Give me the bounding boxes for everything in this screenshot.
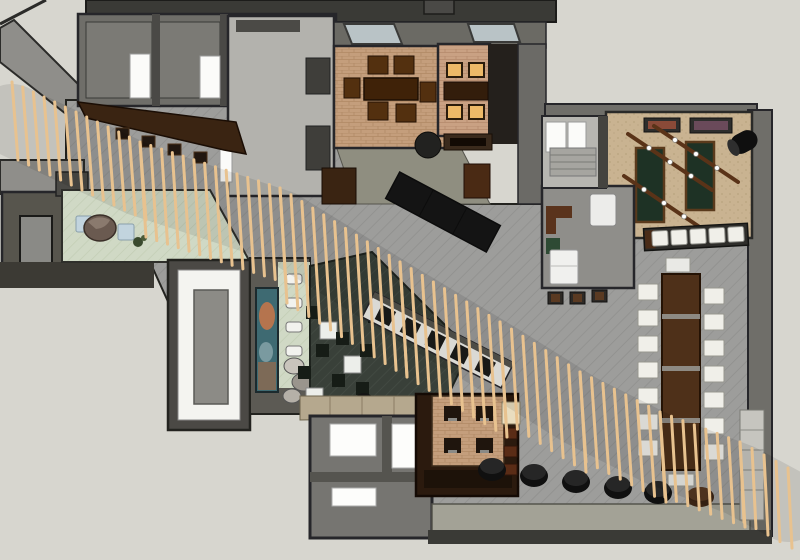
round-column [415,132,441,158]
lounge-table [320,322,337,339]
host-station [322,168,356,204]
bottom-walkway [432,504,750,532]
dining-chair [394,56,414,74]
communal-chair [704,288,724,304]
dining-chair [368,56,388,74]
bench-cushion [709,227,726,243]
wood-chair [504,446,517,457]
communal-chair [704,314,724,330]
wall-sconce [286,346,302,356]
door-opening [330,424,376,456]
shadow-wall [488,44,518,144]
bench-cushion [728,226,745,242]
white-sofa [550,250,578,284]
kitchen-counter [306,126,330,170]
lounge-stool [298,366,311,379]
black-pouf-top [480,458,504,474]
sideboard-top [450,138,486,146]
floorplan-viewport [0,0,800,560]
rail-light-bulb [715,166,720,171]
door-opening [130,54,150,98]
side-wall [598,116,608,188]
dining-chair [368,102,388,120]
dining-table [444,82,488,100]
cushion-bench [643,223,748,250]
hall-stools [548,290,607,304]
door-opening [332,488,376,506]
room-divider-wall [310,472,432,482]
lower-wall-band [0,262,154,288]
wall-sconce [286,322,302,332]
white-table [590,194,616,226]
chair-arm [448,418,457,421]
rail-light-bulb [662,201,667,206]
room-divider-wall [382,416,392,482]
black-pouf-top [564,470,588,486]
floor-artwork-image [694,121,728,130]
communal-chair [638,362,658,378]
art-shape [258,362,276,390]
kitchen-room [220,16,334,196]
lounge-stool [332,374,345,387]
door-opening [200,56,220,98]
kitchen-shelf [236,20,300,32]
table-metal-band [662,314,700,319]
restroom-corridor [168,260,250,430]
door-opening [20,216,52,264]
window-glass [344,24,402,44]
communal-chair [638,284,658,300]
top-wall-block [424,0,454,14]
rail-light-bulb [642,187,647,192]
black-pouf-top [522,464,546,480]
rail-light-bulb [668,160,673,165]
chair-arm [480,450,489,453]
dining-chair [344,78,360,98]
chair-arm [448,450,457,453]
dining-chair [396,104,416,122]
table-metal-band [662,366,700,371]
desk [546,206,556,234]
lounge-stool [356,382,369,395]
door-opening [568,122,586,150]
bench-cushion [652,230,669,246]
office-room [542,186,634,288]
communal-chair [638,310,658,326]
rail-light-bulb [682,214,687,219]
communal-chair [704,392,724,408]
communal-chair [704,366,724,382]
communal-chair [704,340,724,356]
floor-artwork-image [648,121,676,129]
art-shape [259,302,275,330]
rail-light-bulb [689,174,694,179]
service-cabinet [464,164,490,198]
rail-light-bulb [694,152,699,157]
blue-seat [118,224,134,240]
bench-cushion [690,228,707,244]
window-glass [468,24,520,42]
bottom-wall-band [428,530,772,544]
dining-chair [420,82,436,102]
corridor-island [194,290,228,404]
lounge-table [344,356,361,373]
room-divider-wall [152,14,160,106]
bottom-rooms [310,416,432,538]
head-chair [666,258,690,272]
stair-entry [542,116,608,188]
rail-light-bulb [647,146,652,151]
art-shape [259,342,273,362]
rail-light-bulb [673,138,678,143]
floorplan-canvas [0,0,800,560]
bench-cushion [671,229,688,245]
communal-chair [638,336,658,352]
kitchen-counter [306,58,330,94]
black-pouf-top [606,476,630,492]
rock [283,389,301,403]
lounge-stool [316,344,329,357]
dining-table [364,78,418,100]
